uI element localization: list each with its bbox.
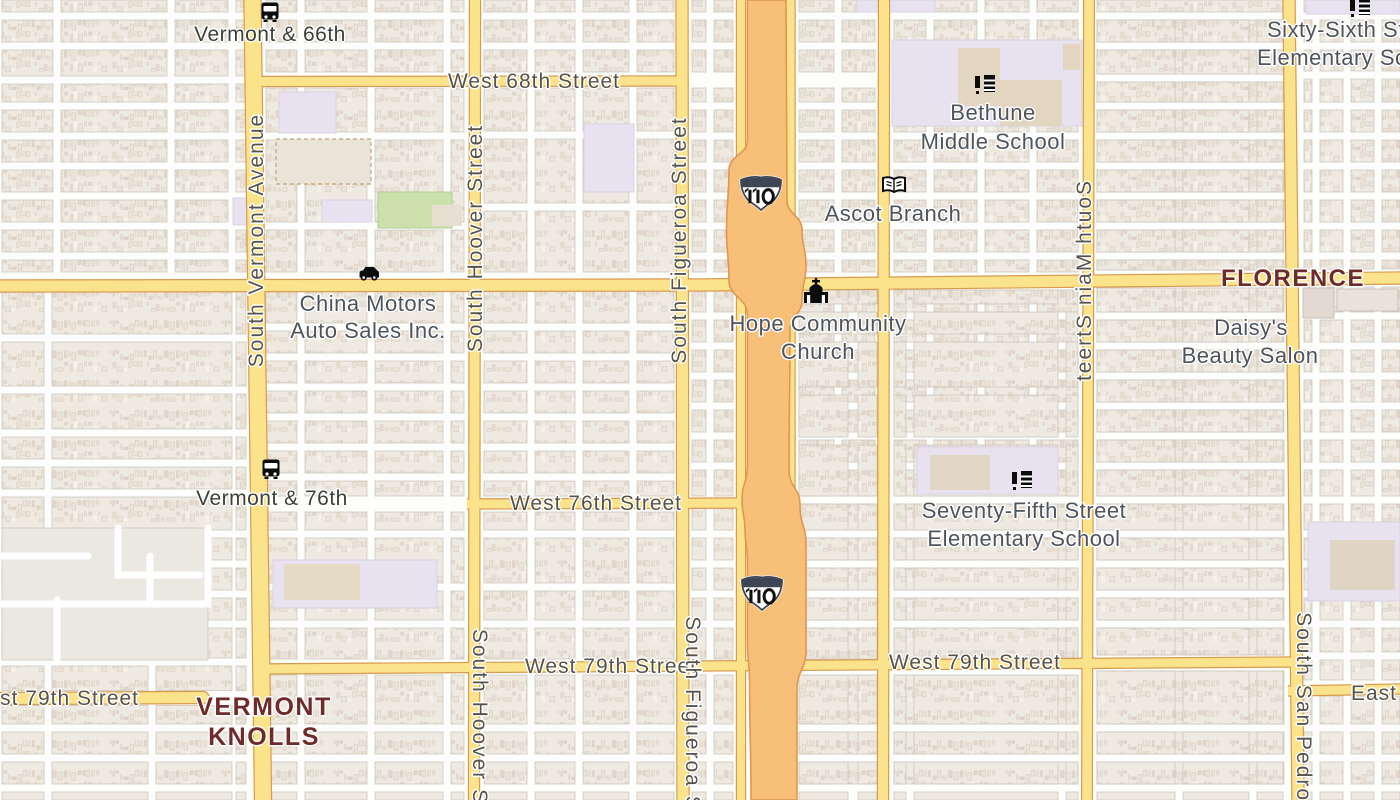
svg-text:West 68th Street: West 68th Street [448, 70, 620, 93]
svg-text:Middle School: Middle School [921, 129, 1066, 154]
svg-text:Daisy's: Daisy's [1214, 315, 1288, 340]
svg-text:KNOLLS: KNOLLS [208, 723, 320, 751]
svg-text:Sixty-Sixth Street: Sixty-Sixth Street [1267, 17, 1400, 42]
svg-text:South Figueroa Street: South Figueroa Street [668, 116, 691, 363]
svg-text:Vermont & 76th: Vermont & 76th [196, 487, 348, 510]
svg-text:Vermont & 66th: Vermont & 66th [194, 23, 346, 46]
svg-text:teertS niaM htuoS: teertS niaM htuoS [1073, 179, 1096, 381]
svg-text:Bethune: Bethune [950, 100, 1035, 125]
svg-text:West 79th Street: West 79th Street [525, 655, 697, 678]
svg-text:Elementary School: Elementary School [927, 526, 1120, 551]
svg-text:West 76th Street: West 76th Street [510, 492, 682, 515]
svg-text:South Hoover Street: South Hoover Street [468, 629, 491, 800]
svg-text:South San Pedro Street: South San Pedro Street [1292, 612, 1315, 800]
svg-text:West 79th Street: West 79th Street [0, 687, 139, 710]
svg-text:West 79th Street: West 79th Street [889, 651, 1061, 674]
svg-text:China Motors: China Motors [300, 291, 437, 316]
svg-text:South Figueroa Street: South Figueroa Street [681, 616, 704, 800]
svg-text:VERMONT: VERMONT [196, 693, 332, 721]
svg-text:Beauty Salon: Beauty Salon [1182, 343, 1319, 368]
svg-text:Church: Church [781, 339, 855, 364]
svg-text:Seventy-Fifth Street: Seventy-Fifth Street [922, 498, 1126, 523]
svg-text:FLORENCE: FLORENCE [1221, 265, 1365, 292]
svg-text:Auto Sales Inc.: Auto Sales Inc. [290, 318, 445, 343]
svg-text:Hope Community: Hope Community [730, 311, 907, 336]
svg-text:Ascot Branch: Ascot Branch [825, 201, 962, 226]
svg-text:South Hoover Street: South Hoover Street [464, 124, 487, 352]
svg-text:South Vermont Avenue: South Vermont Avenue [245, 113, 268, 367]
svg-text:Elementary School: Elementary School [1257, 45, 1400, 70]
svg-text:East 79th Street: East 79th Street [1351, 682, 1400, 705]
